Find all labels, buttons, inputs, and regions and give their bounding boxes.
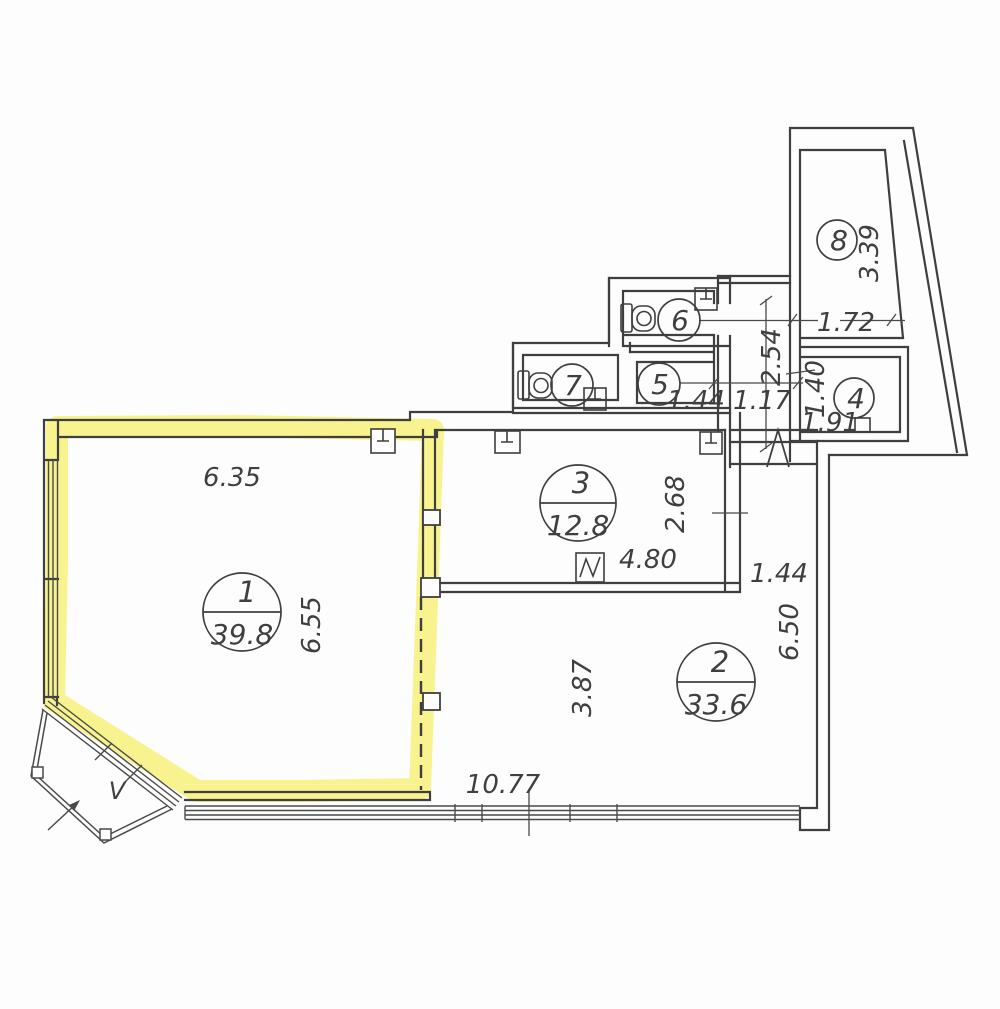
room-2-depth-mid-dim: 3.87: [568, 659, 598, 717]
corridor-length-dim: 2.54: [757, 328, 787, 386]
riser-icon: [700, 432, 722, 454]
floor-plan-drawing: 1 39.8 6.35 6.55 2 33.6 10.77 3.87 6.50 …: [0, 0, 1000, 1009]
plan-background: [0, 0, 1000, 1009]
room-2-depth-right-dim: 6.50: [775, 603, 805, 661]
room-3-number-label: 3: [572, 466, 590, 500]
balcony-post: [100, 829, 111, 840]
room-1-area-label: 39.8: [211, 618, 273, 651]
room-2-nook-width-dim: 1.44: [750, 559, 808, 589]
balcony-label: V: [109, 777, 127, 805]
wall-stub: [421, 578, 440, 597]
floor-plan-page: 1 39.8 6.35 6.55 2 33.6 10.77 3.87 6.50 …: [0, 0, 1000, 1009]
room-3-area-label: 12.8: [547, 509, 609, 542]
room-2-width-dim: 10.77: [466, 770, 541, 800]
room-2-number-label: 2: [711, 645, 729, 679]
riser-icon: [495, 431, 520, 453]
room-3-depth-dim: 2.68: [661, 475, 691, 533]
room-5-width-dim: 1.44: [667, 386, 725, 416]
room-8-width-dim: 1.72: [817, 308, 875, 338]
wall-stub: [423, 693, 440, 710]
room-7-number-label: 7: [564, 369, 582, 402]
wall-stub: [423, 510, 440, 525]
room-6-number-label: 6: [671, 304, 689, 337]
room-1-number-label: 1: [238, 575, 256, 609]
room-3-width-dim: 4.80: [619, 545, 677, 575]
room-8-number-label: 8: [830, 224, 848, 257]
riser-icon: [371, 429, 395, 453]
room-8-height-dim: 3.39: [855, 224, 885, 282]
balcony-post: [32, 767, 43, 778]
room-1-width-dim: 6.35: [203, 463, 261, 493]
room-2-area-label: 33.6: [685, 688, 747, 721]
room-1-height-dim: 6.55: [297, 596, 327, 654]
room-4-width-dim: 1.91: [801, 408, 859, 438]
corridor-width-dim: 1.17: [733, 386, 791, 416]
